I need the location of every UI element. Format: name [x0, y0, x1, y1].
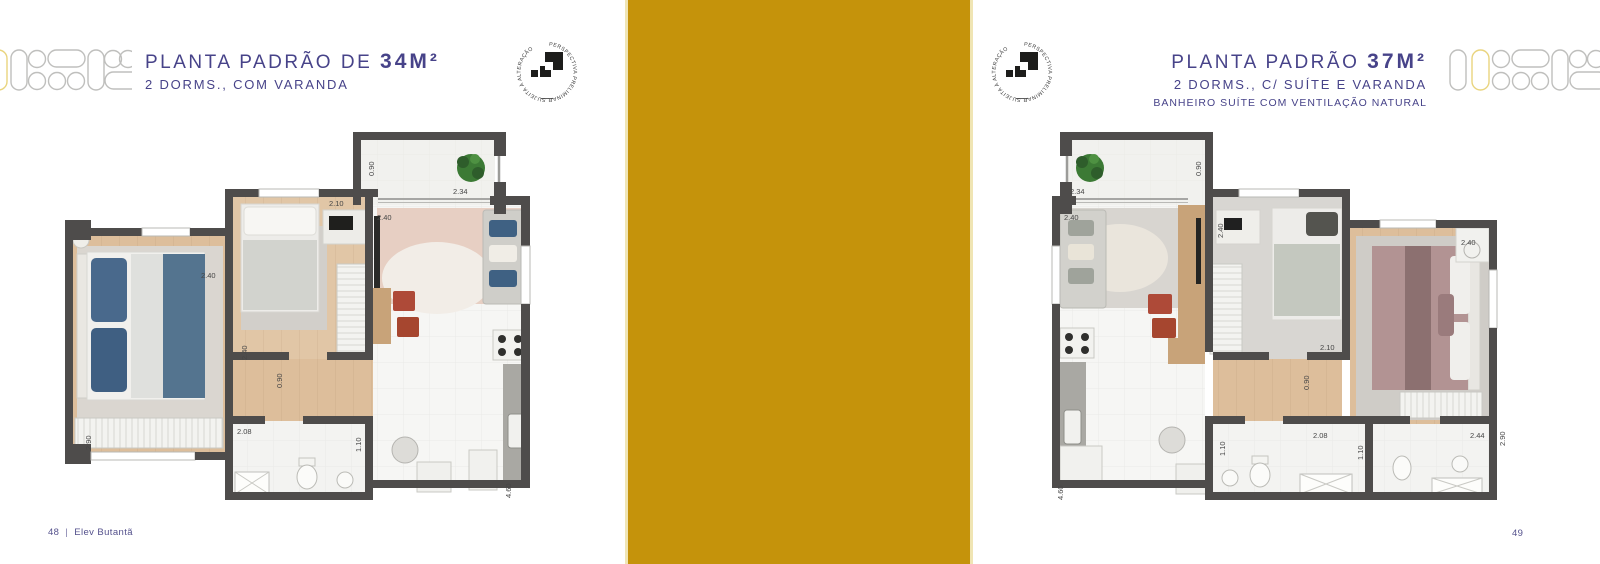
dim-label: 2.10 — [329, 199, 344, 208]
left-plan-subtitle: 2 DORMS., COM VARANDA — [145, 77, 440, 92]
pillow — [244, 207, 316, 235]
kitchen-sink — [1064, 410, 1081, 444]
dim-label: 1.10 — [1218, 441, 1227, 456]
left-footer: 48|Elev Butantã — [48, 527, 133, 538]
preliminary-perspective-stamp-right: PERSPECTIVA PRELIMINAR SUJEITA À ALTERAÇ… — [986, 36, 1058, 108]
floor-plan-34m2: 0.90 2.34 2.10 2.40 2.40 2.40 0.90 2.08 … — [65, 128, 535, 503]
dim-label: 2.08 — [1313, 431, 1328, 440]
dining-counter — [373, 288, 391, 344]
water-heater — [1159, 427, 1185, 453]
right-plan-header: PLANTA PADRÃO 37M² 2 DORMS., C/ SUÍTE E … — [1153, 50, 1427, 109]
red-chair — [393, 291, 415, 311]
dim-label: 2.08 — [237, 427, 252, 436]
right-plan-subtitle: 2 DORMS., C/ SUÍTE E VARANDA — [1153, 77, 1427, 92]
dim-label: 2.40 — [240, 345, 249, 360]
sofa-pillow — [1068, 220, 1094, 236]
left-title-prefix: PLANTA PADRÃO DE — [145, 52, 372, 73]
stamp-logo-icon — [1006, 52, 1038, 77]
preliminary-perspective-stamp-left: PERSPECTIVA PRELIMINAR SUJEITA À ALTERAÇ… — [511, 36, 583, 108]
pillow-dark — [1306, 212, 1338, 236]
stove — [1060, 328, 1094, 358]
decor-pattern-left — [0, 48, 132, 93]
sofa-pillow — [1068, 268, 1094, 284]
water-heater — [392, 437, 418, 463]
pillow-blue — [91, 258, 127, 322]
toilet — [1393, 456, 1411, 480]
dim-label: 4.60 — [1056, 485, 1065, 500]
dim-label: 4.60 — [504, 483, 513, 498]
dim-label: 0.90 — [1302, 375, 1311, 390]
bench — [75, 418, 223, 448]
quilt — [243, 240, 317, 310]
dim-label: 0.90 — [1194, 161, 1203, 176]
bed-runner — [1405, 246, 1431, 390]
dim-label: 2.34 — [453, 187, 468, 196]
plant — [1076, 154, 1104, 182]
sofa-pillow-blue — [489, 270, 517, 287]
left-plan-title: PLANTA PADRÃO DE 34M² — [145, 50, 440, 74]
tv — [329, 216, 353, 230]
page-number: 49 — [1512, 528, 1523, 539]
dim-label: 2.90 — [1498, 431, 1507, 446]
decor-pattern-right — [1448, 48, 1600, 93]
right-footer: 49 — [1512, 528, 1523, 539]
left-title-area: 34M² — [380, 50, 440, 73]
dim-label: 2.40 — [201, 271, 216, 280]
plant — [457, 154, 485, 182]
bathroom-sink — [1452, 456, 1468, 472]
sofa-pillow-white — [489, 245, 517, 262]
dim-label: 1.10 — [1356, 445, 1365, 460]
quilt — [1274, 244, 1340, 316]
dim-label: 2.10 — [1320, 343, 1335, 352]
dim-label: 2.34 — [1070, 187, 1085, 196]
bathroom-sink — [337, 472, 353, 488]
bed-headboard — [77, 254, 87, 398]
dining-table — [1168, 338, 1205, 364]
washer — [1176, 464, 1210, 494]
cushion — [1438, 294, 1454, 336]
bed-throw — [163, 254, 205, 398]
right-title-area: 37M² — [1367, 50, 1427, 73]
red-chair — [397, 317, 419, 337]
pillow-blue — [91, 328, 127, 392]
dim-label: 1.10 — [354, 437, 363, 452]
gold-divider-band — [625, 0, 973, 564]
sofa-pillow — [1068, 244, 1094, 260]
dim-label: 2.44 — [1470, 431, 1485, 440]
brand-name: Elev Butantã — [74, 527, 133, 538]
dim-label: 0.90 — [275, 373, 284, 388]
left-plan-header: PLANTA PADRÃO DE 34M² 2 DORMS., COM VARA… — [145, 50, 440, 92]
toilet — [297, 465, 317, 489]
dim-label: 2.90 — [84, 435, 93, 450]
right-plan-title: PLANTA PADRÃO 37M² — [1153, 50, 1427, 74]
tv-console — [374, 216, 380, 288]
dim-label: 2.40 — [1461, 238, 1476, 247]
red-chair — [1152, 318, 1176, 338]
tv-console — [1196, 218, 1201, 284]
right-title-prefix: PLANTA PADRÃO — [1171, 52, 1359, 73]
laptop — [1224, 218, 1242, 230]
bathroom-sink — [1222, 470, 1238, 486]
right-plan-note: BANHEIRO SUÍTE COM VENTILAÇÃO NATURAL — [1153, 97, 1427, 109]
red-chair — [1148, 294, 1172, 314]
dim-label: 2.40 — [377, 213, 392, 222]
bench — [1400, 392, 1482, 418]
wardrobe — [1210, 264, 1242, 354]
floor-plan-37m2: 2.34 0.90 2.40 2.40 2.10 0.90 1.10 2.08 … — [1020, 128, 1520, 503]
toilet — [1250, 463, 1270, 487]
page-number: 48 — [48, 527, 59, 538]
sofa-pillow-blue — [489, 220, 517, 237]
stamp-logo-icon — [531, 52, 563, 77]
dim-label: 2.40 — [1216, 223, 1225, 238]
dim-label: 2.40 — [1064, 213, 1079, 222]
dim-label: 0.90 — [367, 161, 376, 176]
footer-separator: | — [65, 527, 68, 538]
